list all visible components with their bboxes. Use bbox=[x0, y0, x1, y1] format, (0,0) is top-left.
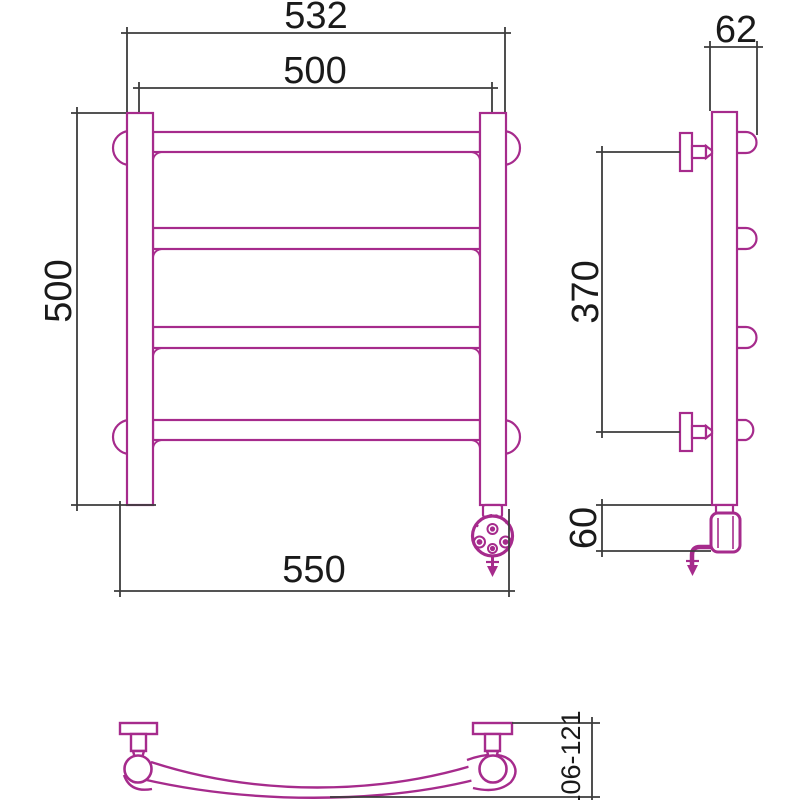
dim-370-lines bbox=[596, 146, 680, 438]
dimension-label-bottom-width: 550 bbox=[282, 549, 345, 591]
dimension-label-depth-range: 106-121 bbox=[556, 710, 586, 800]
dimension-label-overall-width: 532 bbox=[284, 0, 347, 37]
wall-bracket-top bbox=[680, 133, 712, 171]
dimension-label-heater-height: 60 bbox=[563, 507, 605, 549]
left-post bbox=[127, 113, 153, 505]
power-plug-icon bbox=[486, 556, 499, 577]
technical-drawing-page: 532 500 500 550 62 370 60 106-121 bbox=[0, 0, 800, 800]
wall-bracket-bottom bbox=[680, 413, 712, 451]
rung-1 bbox=[153, 132, 480, 152]
rung-3 bbox=[153, 327, 480, 348]
side-post bbox=[712, 112, 737, 505]
tube-arc-front-edge bbox=[151, 762, 484, 788]
plan-left-bracket bbox=[120, 723, 157, 783]
heater-unit bbox=[473, 505, 513, 577]
plan-right-post-section bbox=[480, 756, 507, 783]
side-view bbox=[680, 112, 757, 576]
dimension-label-depth: 62 bbox=[715, 9, 757, 51]
plan-view bbox=[120, 723, 516, 798]
front-view bbox=[113, 113, 520, 577]
rung-end-3 bbox=[737, 327, 756, 348]
rung-2 bbox=[153, 228, 480, 249]
rung-end-1 bbox=[737, 132, 757, 153]
dimension-label-center-width: 500 bbox=[283, 50, 346, 92]
right-post bbox=[480, 113, 506, 505]
rung-end-4 bbox=[737, 420, 753, 440]
plan-left-post-section bbox=[125, 756, 152, 783]
rung-4 bbox=[153, 420, 480, 440]
rung-fillets bbox=[153, 152, 480, 449]
dimension-label-bracket-spacing: 370 bbox=[565, 260, 607, 323]
side-heater-housing bbox=[711, 505, 740, 552]
dimension-label-height: 500 bbox=[38, 259, 80, 322]
towel-rail-technical-drawing: 532 500 500 550 62 370 60 106-121 bbox=[0, 0, 800, 800]
rung-end-2 bbox=[737, 228, 757, 249]
